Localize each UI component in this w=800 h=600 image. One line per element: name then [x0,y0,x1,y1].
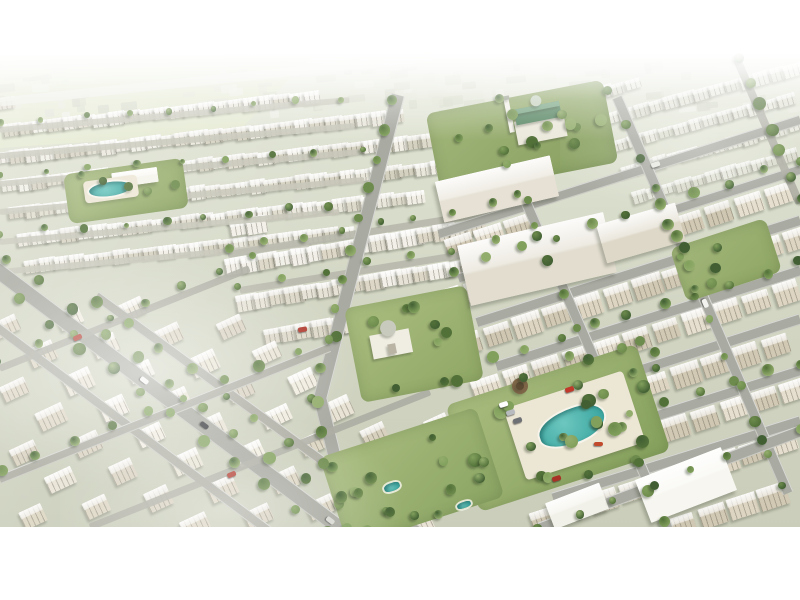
aerial-city-render [0,0,800,600]
sky-fade [0,0,800,140]
bottom-white-margin [0,527,800,600]
